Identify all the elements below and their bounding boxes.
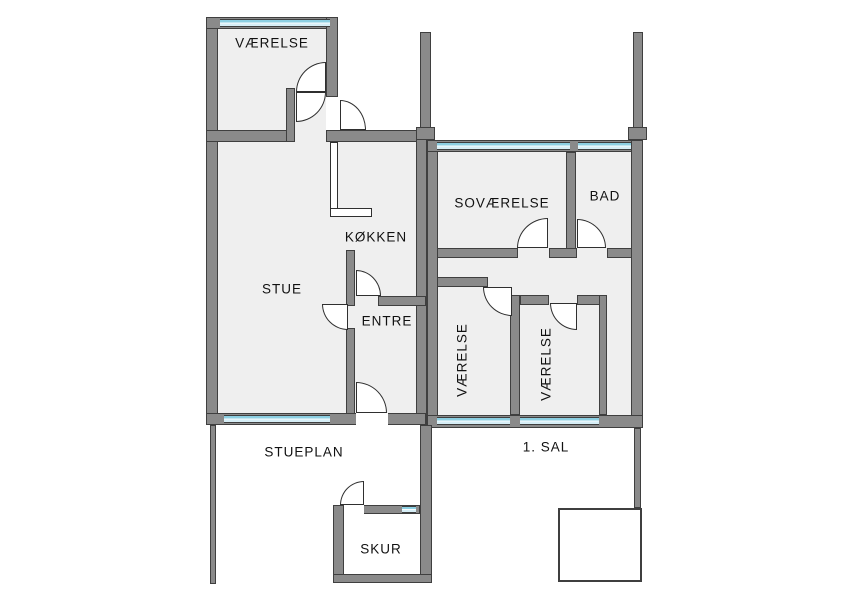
wall <box>420 425 432 583</box>
garage-outline <box>558 508 642 582</box>
window <box>437 142 570 150</box>
door-opening <box>356 413 388 425</box>
wall-stub-chimney <box>633 32 643 140</box>
window <box>220 19 330 27</box>
wall-stub-foot <box>416 127 435 140</box>
wall <box>206 17 218 425</box>
window <box>402 506 416 513</box>
floor-plan: VÆRELSE STUE KØKKEN ENTRE SOVÆRELSE BAD … <box>0 0 850 600</box>
window <box>437 417 510 425</box>
wall <box>566 152 576 258</box>
wall <box>326 130 426 142</box>
wall <box>416 130 427 425</box>
wall <box>549 248 577 258</box>
room-label-vaerelse-first-a: VÆRELSE <box>455 323 470 397</box>
wall <box>631 140 643 428</box>
wall <box>333 505 344 583</box>
window <box>224 415 330 423</box>
wall <box>326 17 338 97</box>
window <box>578 142 631 150</box>
kitchen-counter <box>330 142 338 216</box>
door-opening <box>344 505 364 514</box>
room-label-bad: BAD <box>590 189 621 204</box>
kitchen-counter <box>330 208 372 217</box>
wall <box>206 130 288 142</box>
room-label-kokken: KØKKEN <box>345 230 407 245</box>
wall <box>520 295 549 305</box>
room-label-skur: SKUR <box>360 542 402 557</box>
wall <box>599 295 607 415</box>
wall-stub-chimney <box>420 32 431 140</box>
room-label-entre: ENTRE <box>362 314 413 329</box>
boundary-fence <box>210 425 216 584</box>
room-label-stue: STUE <box>262 282 302 297</box>
wall <box>286 88 295 142</box>
wall <box>333 574 432 583</box>
room-label-vaerelse-first-b: VÆRELSE <box>539 327 554 401</box>
room-label-vaerelse-ground: VÆRELSE <box>235 36 309 51</box>
window <box>520 417 599 425</box>
wall <box>437 277 488 287</box>
room-main-ground <box>218 142 418 413</box>
wall <box>346 328 355 415</box>
door-swing <box>340 100 366 130</box>
wall <box>378 296 426 306</box>
wall-stub-foot <box>628 127 647 140</box>
wall <box>437 248 518 258</box>
floor-label-1-sal: 1. SAL <box>523 440 570 455</box>
wall <box>607 248 632 258</box>
boundary-fence <box>634 428 641 508</box>
room-label-sovaerelse: SOVÆRELSE <box>454 196 549 211</box>
floor-label-stueplan: STUEPLAN <box>264 445 343 460</box>
door-swing <box>340 481 364 505</box>
wall <box>346 250 355 306</box>
